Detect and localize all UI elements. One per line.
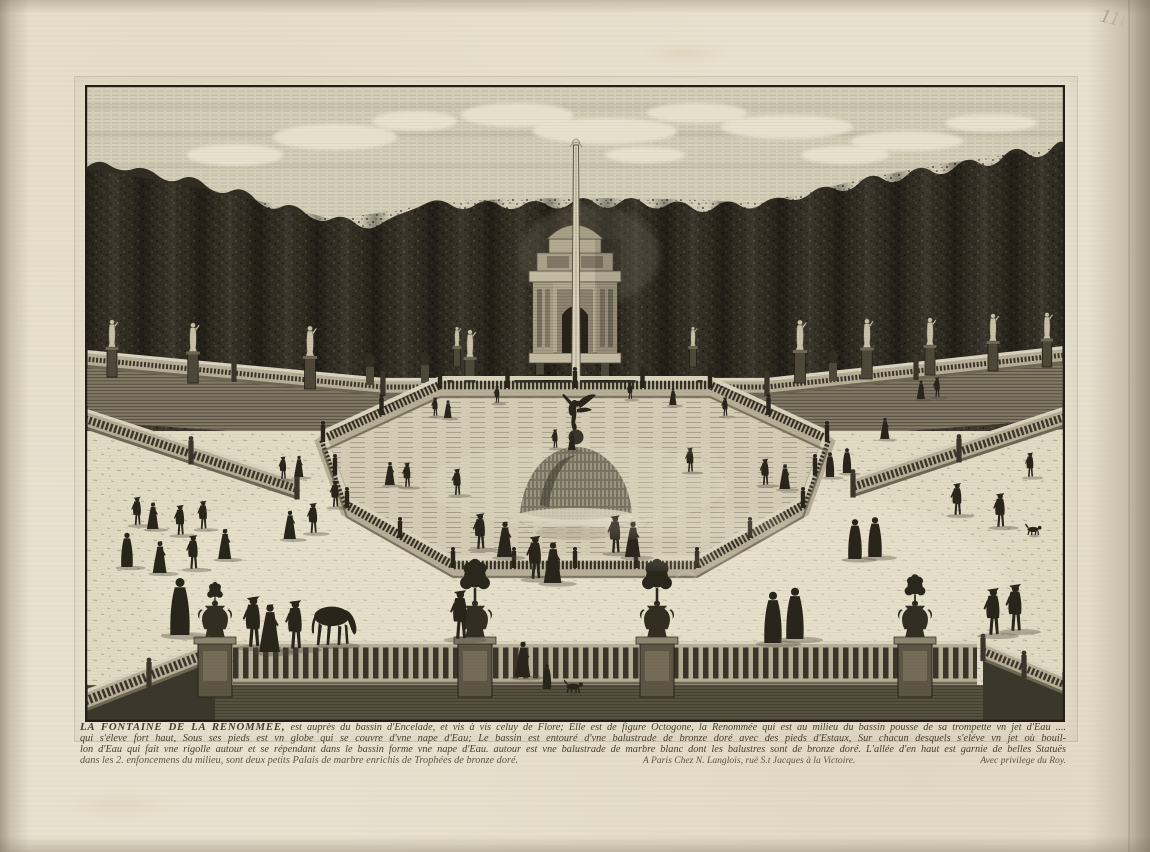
privilege-note: Avec privilege du Roy.	[980, 755, 1066, 766]
sheet-edge-left	[0, 0, 30, 852]
pencil-page-number: 116	[1098, 5, 1134, 35]
caption-block: LA FONTAINE DE LA RENOMMEE, est auprès d…	[80, 722, 1066, 766]
engraving-plate: ©	[85, 85, 1065, 722]
caption-line-4-text: dans les 2. enfoncemens du milieu, sont …	[80, 755, 518, 766]
sheet-edge-right	[1088, 0, 1150, 852]
caption-title: LA FONTAINE DE LA RENOMMEE,	[80, 721, 285, 733]
caption-line-2: qui s'éleve fort haut, Sous ses pieds es…	[80, 733, 1066, 744]
caption-line-3: lon d'Eau qui fait vne rigolle autour et…	[80, 744, 1066, 755]
foxing-spot	[640, 40, 730, 66]
sheet-edge-top	[0, 0, 1150, 14]
scanned-print-sheet: © 116 LA FONTAINE DE LA RENOMMEE, est au…	[0, 0, 1150, 852]
publisher-line: A Paris Chez N. Langlois, ruë S.t Jacque…	[643, 755, 855, 766]
caption-line-4: dans les 2. enfoncemens du milieu, sont …	[80, 755, 1066, 766]
caption-line-1: LA FONTAINE DE LA RENOMMEE, est auprès d…	[80, 722, 1066, 733]
paper-crease	[1128, 0, 1130, 852]
foxing-spot	[60, 790, 180, 820]
engraving-tone	[85, 85, 1065, 722]
caption-line-1-text: est auprès du bassin d'Encelade, et vis …	[291, 722, 1067, 733]
engraving-scene: ©	[85, 85, 1065, 722]
sheet-edge-bottom	[0, 836, 1150, 852]
